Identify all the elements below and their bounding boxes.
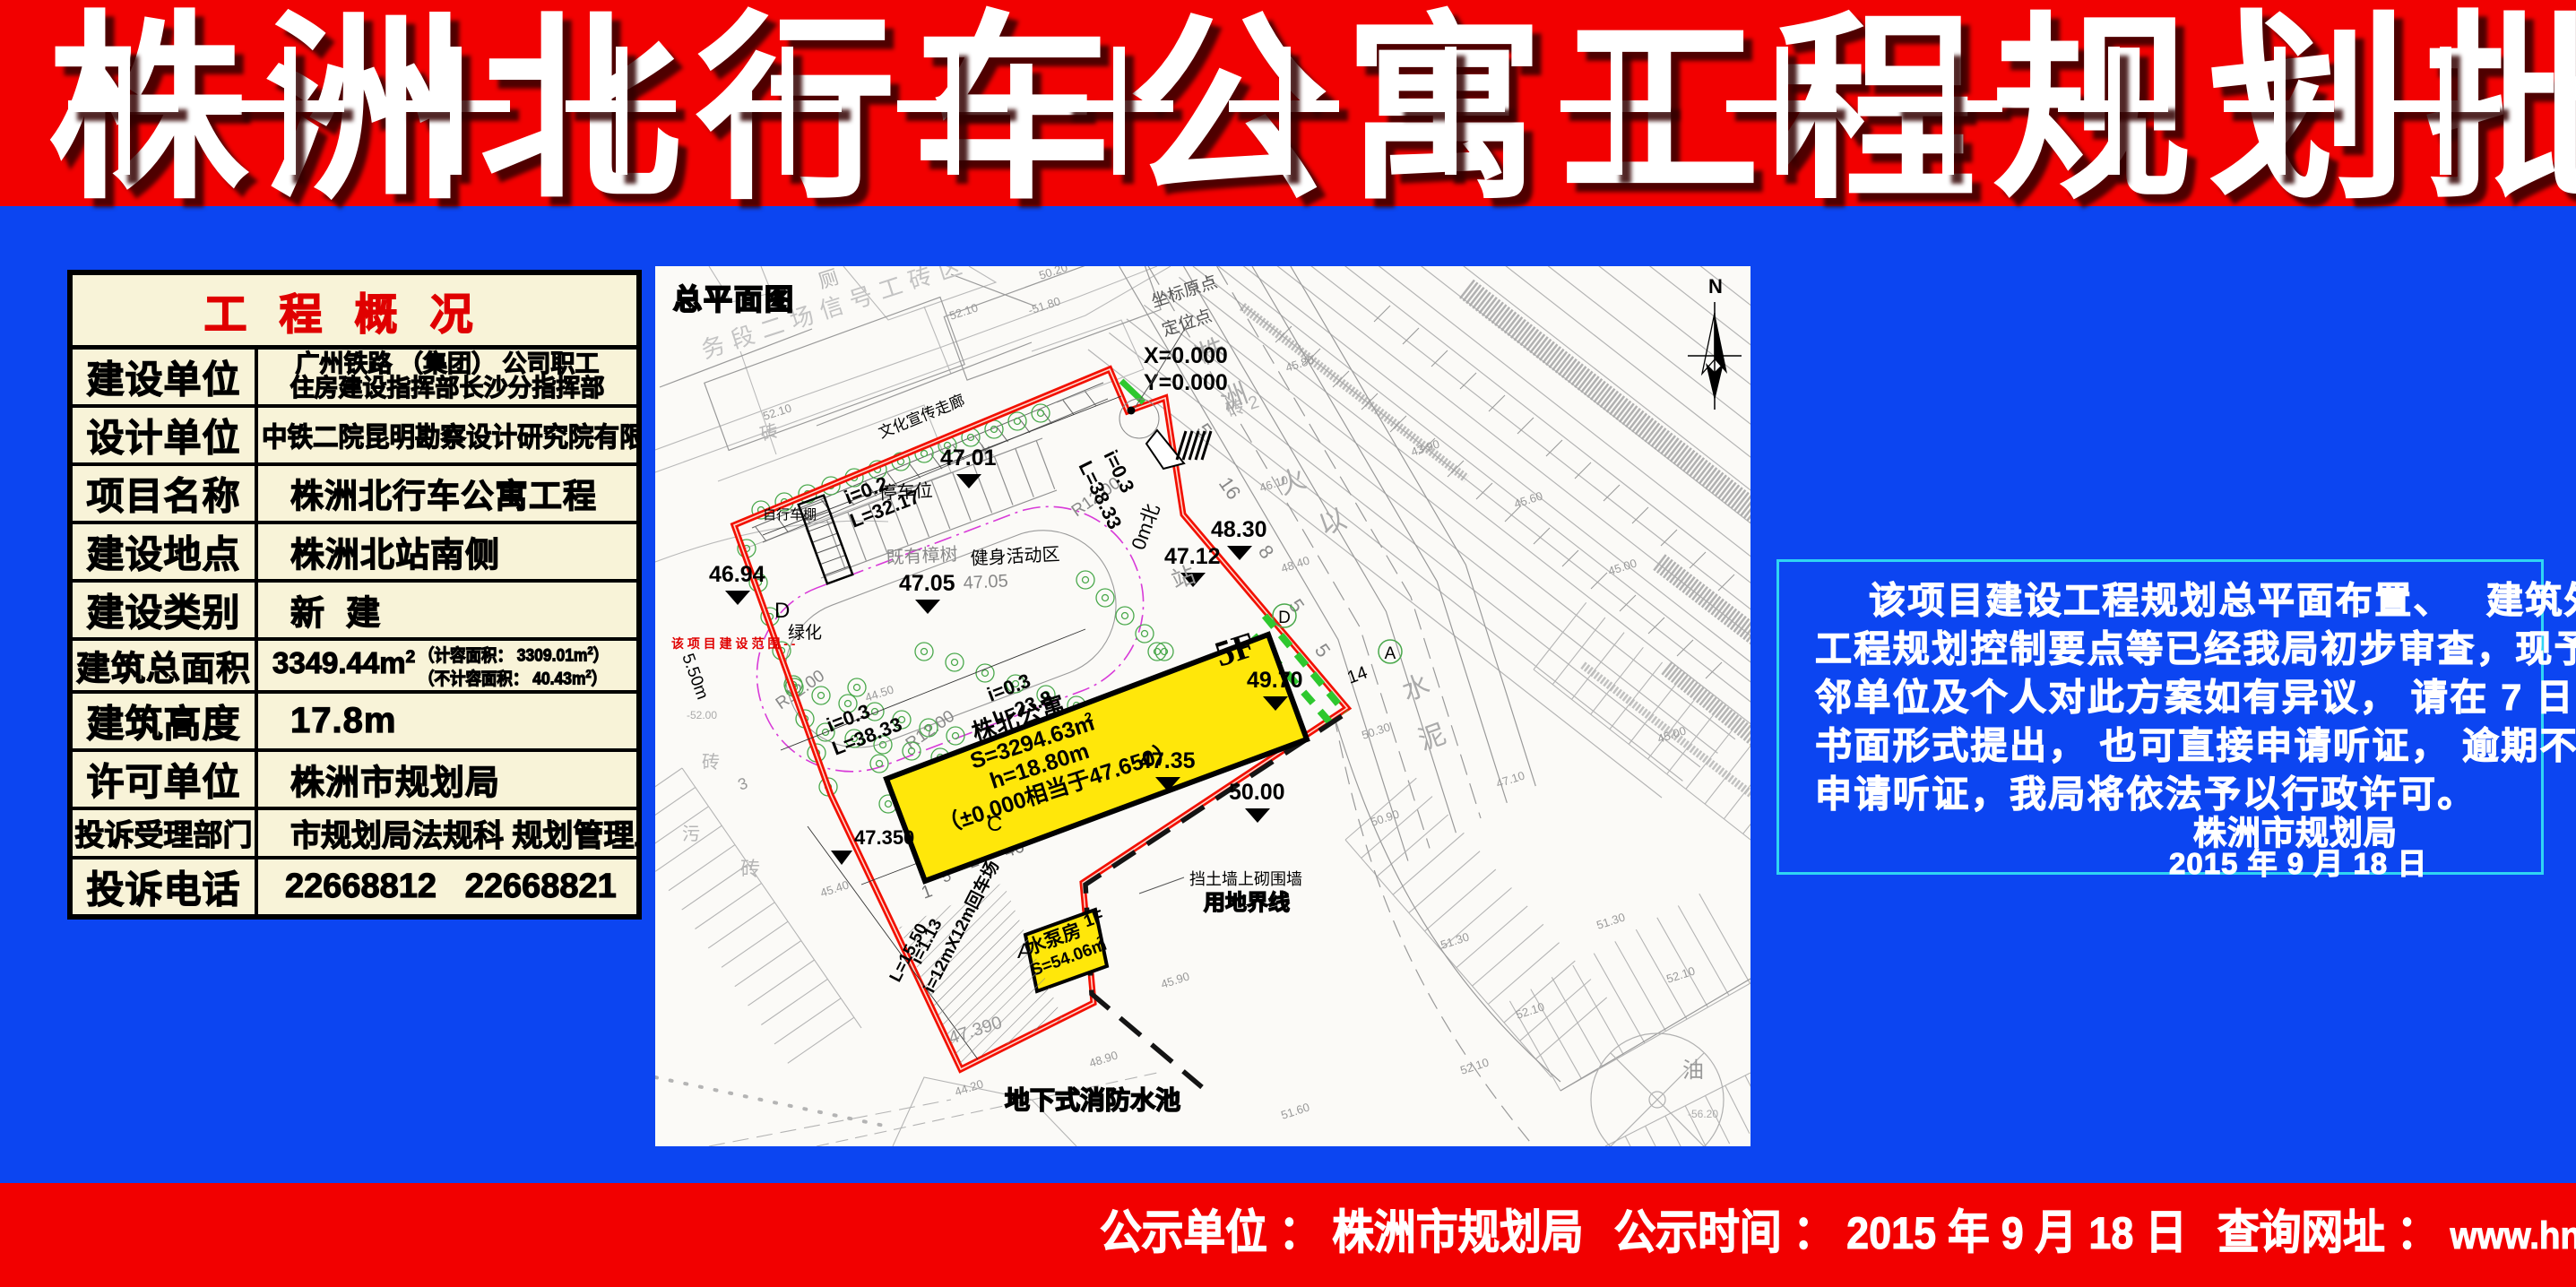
svg-text:污: 污 bbox=[682, 824, 700, 844]
svg-text:49.70: 49.70 bbox=[1247, 668, 1303, 693]
svg-text:A: A bbox=[1385, 644, 1396, 663]
svg-text:A: A bbox=[1017, 939, 1032, 963]
svg-text:N: N bbox=[1708, 275, 1723, 298]
svg-text:-52.00: -52.00 bbox=[687, 709, 717, 721]
svg-text:47.35: 47.35 bbox=[1139, 748, 1196, 773]
svg-text:47.12: 47.12 bbox=[1164, 544, 1221, 569]
svg-text:Y=0.000: Y=0.000 bbox=[1144, 370, 1228, 395]
svg-text:46.94: 46.94 bbox=[709, 562, 765, 587]
svg-text:地下式消防水池: 地下式消防水池 bbox=[1005, 1086, 1180, 1114]
svg-text:该 项 目 建 设 范 围 - -: 该 项 目 建 设 范 围 - - bbox=[671, 636, 796, 651]
svg-text:既有樟树: 既有樟树 bbox=[886, 544, 958, 568]
svg-text:D: D bbox=[1278, 609, 1291, 627]
svg-text:50.00: 50.00 bbox=[1229, 780, 1285, 805]
svg-text:砖: 砖 bbox=[740, 858, 760, 880]
svg-text:47.05: 47.05 bbox=[899, 571, 955, 596]
svg-text:47.350: 47.350 bbox=[854, 826, 914, 849]
svg-text:47.05: 47.05 bbox=[963, 571, 1008, 593]
svg-text:油: 油 bbox=[1682, 1058, 1704, 1083]
svg-text:停车位: 停车位 bbox=[878, 480, 933, 504]
svg-text:48.30: 48.30 bbox=[1211, 517, 1267, 542]
svg-text:-56.20: -56.20 bbox=[1688, 1108, 1718, 1120]
svg-text:用地界线: 用地界线 bbox=[1204, 891, 1290, 915]
svg-text:总平面图: 总平面图 bbox=[673, 283, 795, 315]
svg-text:砖: 砖 bbox=[702, 752, 720, 773]
svg-text:D: D bbox=[774, 599, 790, 623]
svg-text:挡土墙上砌围墙: 挡土墙上砌围墙 bbox=[1189, 870, 1302, 888]
svg-text:自行车棚: 自行车棚 bbox=[763, 507, 817, 523]
svg-text:C: C bbox=[987, 812, 1002, 836]
svg-text:X=0.000: X=0.000 bbox=[1144, 343, 1228, 368]
svg-text:47.01: 47.01 bbox=[940, 445, 997, 471]
